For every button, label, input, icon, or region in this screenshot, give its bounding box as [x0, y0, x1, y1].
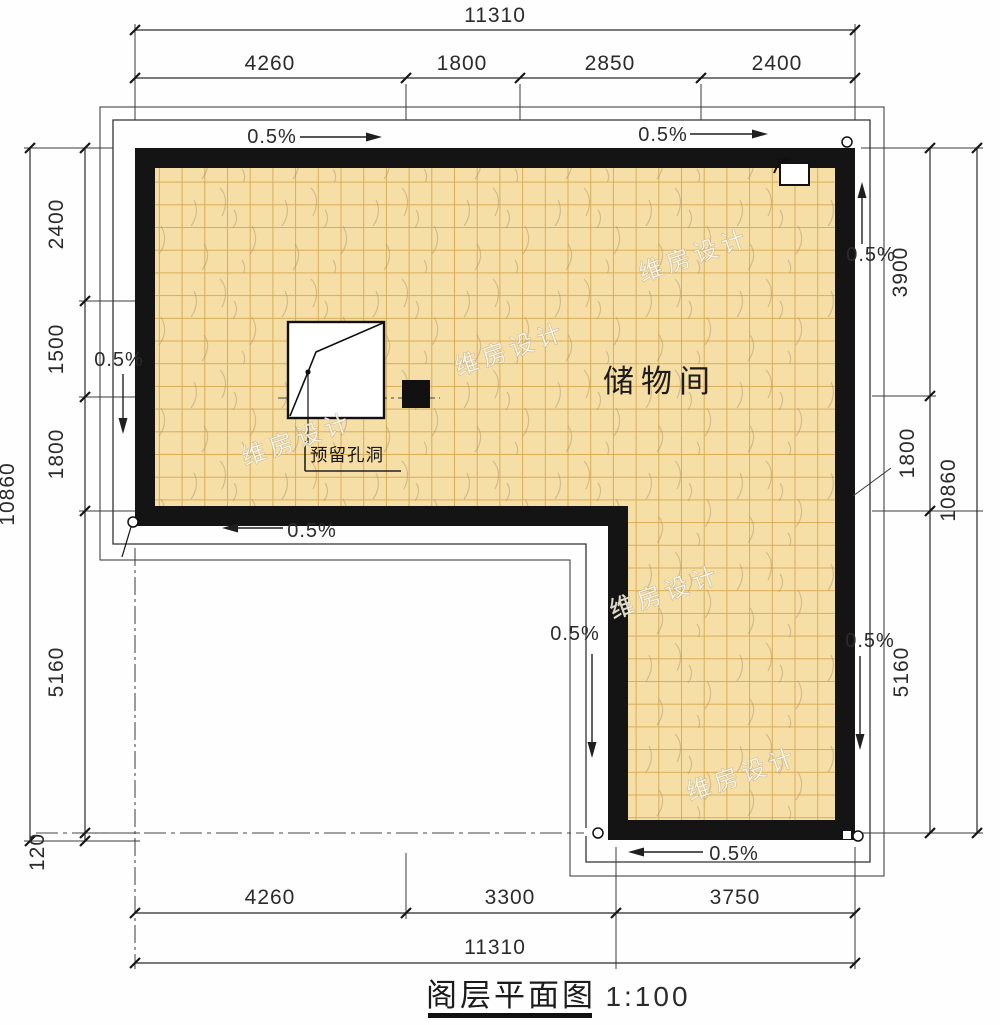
room-name-storage: 储物间 — [603, 364, 717, 399]
slope-label-right-lower: 0.5% — [845, 630, 895, 652]
dim-bottom-overall: 11310 — [464, 936, 526, 959]
storage-room-floor — [155, 168, 835, 820]
slope-label-bottom: 0.5% — [709, 843, 759, 865]
drawing-scale: 1:100 — [605, 981, 690, 1012]
slope-label-right-upper: 0.5% — [846, 244, 896, 266]
dim-bottom-seg-2: 3300 — [485, 886, 536, 909]
dim-top-seg-3: 2850 — [585, 52, 636, 75]
dim-top-seg-2: 1800 — [437, 52, 488, 75]
dim-bottom-seg-1: 4260 — [245, 886, 296, 909]
bottom-dimensions: 4260 3300 3750 11310 — [245, 886, 761, 959]
dim-left-seg-5: 120 — [26, 833, 49, 871]
slope-label-middle-wall: 0.5% — [550, 623, 600, 645]
dim-left-seg-1: 2400 — [45, 199, 68, 250]
dim-left-overall: 10860 — [0, 462, 19, 525]
attic-floor-plan-drawing: 11310 4260 1800 2850 2400 4260 3300 3750… — [0, 0, 1000, 1025]
rainwater-pipe-detail — [774, 158, 809, 185]
plan-canvas: 11310 4260 1800 2850 2400 4260 3300 3750… — [0, 0, 1000, 1025]
column — [402, 380, 430, 408]
dim-left-seg-3: 1800 — [45, 429, 68, 480]
right-dimensions: 3900 1800 5160 10860 — [889, 247, 960, 698]
dim-top-seg-4: 2400 — [752, 52, 803, 75]
dim-right-seg-2: 1800 — [896, 428, 919, 479]
dim-top-seg-1: 4260 — [245, 52, 296, 75]
top-dimensions: 11310 4260 1800 2850 2400 — [245, 4, 803, 75]
left-dimensions: 2400 1500 1800 5160 120 10860 — [0, 199, 68, 871]
dim-right-overall: 10860 — [937, 458, 960, 521]
dim-left-seg-2: 1500 — [45, 324, 68, 375]
slope-label-left-wall: 0.5% — [94, 349, 144, 371]
dim-bottom-seg-3: 3750 — [710, 886, 761, 909]
dim-right-seg-3: 5160 — [890, 647, 913, 698]
reserved-hole-label: 预留孔洞 — [310, 445, 384, 465]
drawing-title-block: 阁层平面图 1:100 — [426, 978, 691, 1018]
slope-label-top-right: 0.5% — [638, 124, 688, 146]
dim-top-overall: 11310 — [464, 4, 526, 27]
dim-left-seg-4: 5160 — [45, 647, 68, 698]
slope-label-top-left: 0.5% — [247, 126, 297, 148]
drawing-title: 阁层平面图 — [426, 978, 596, 1013]
slope-label-middle: 0.5% — [287, 520, 337, 542]
